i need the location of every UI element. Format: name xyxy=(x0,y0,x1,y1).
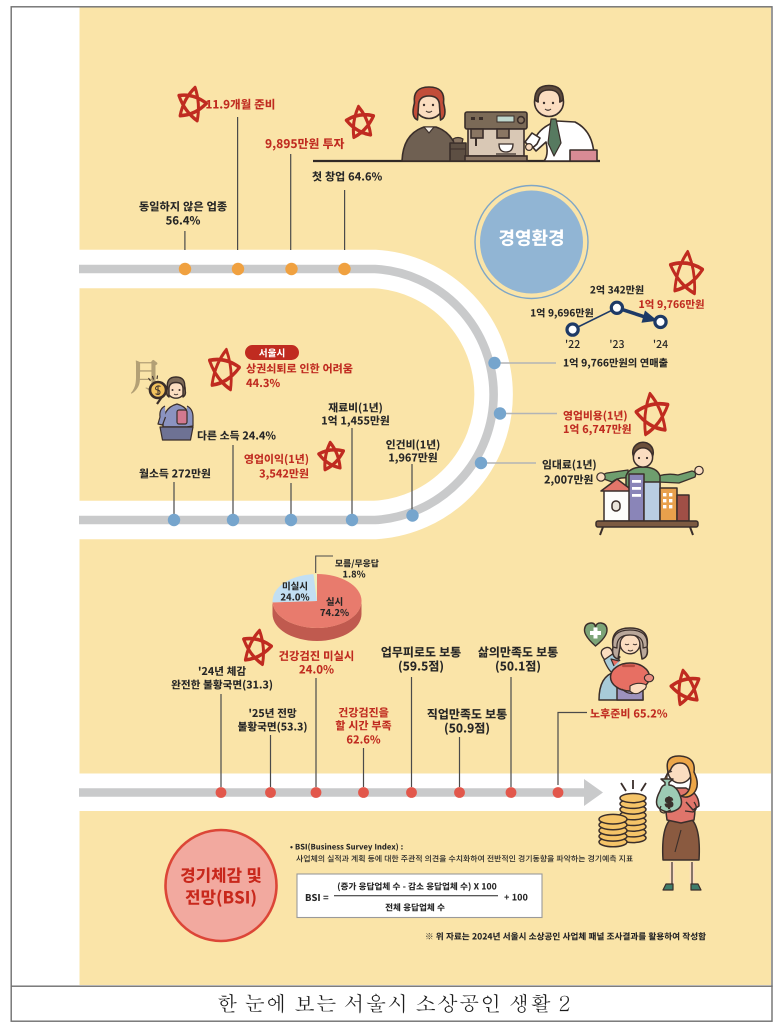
svg-text:$: $ xyxy=(665,794,673,810)
